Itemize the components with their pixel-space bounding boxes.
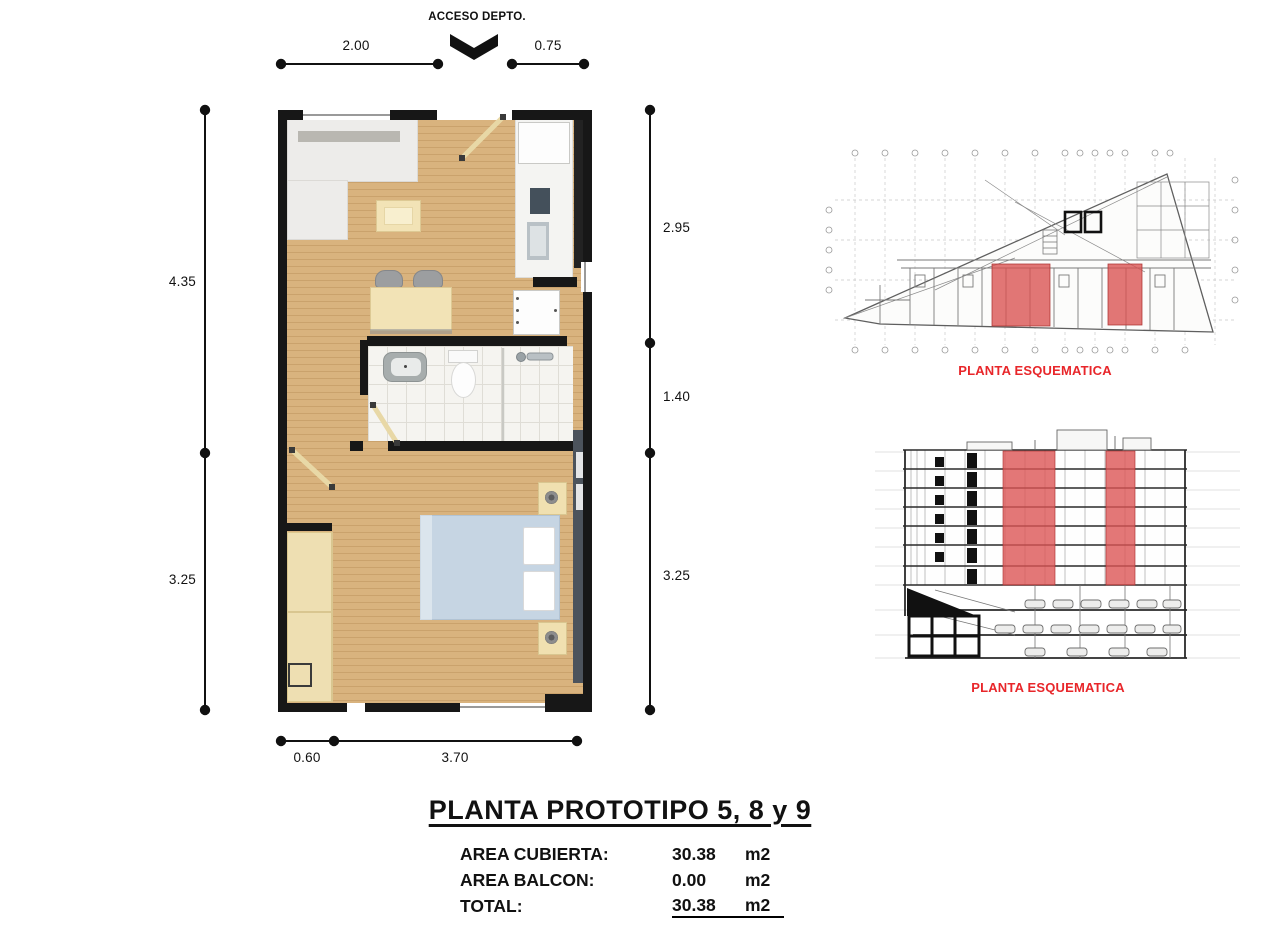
section-schematic	[875, 420, 1240, 675]
row-unit: m2	[745, 844, 783, 865]
dim-top-2: 0.75	[518, 38, 578, 53]
bathroom-door-leaf	[373, 405, 397, 443]
dim-left-1: 4.35	[148, 274, 196, 289]
area-table: AREA CUBIERTA: 30.38 m2 AREA BALCON: 0.0…	[460, 841, 784, 919]
parked-cars	[995, 600, 1181, 656]
row-value: 0.00	[672, 870, 745, 891]
row-label: TOTAL:	[460, 896, 672, 917]
entry-door-leaf	[462, 117, 503, 158]
dim-right-1: 2.95	[663, 220, 713, 235]
unit-highlight-section	[1003, 451, 1055, 585]
dim-right-2: 1.40	[663, 389, 713, 404]
row-value: 30.38	[672, 844, 745, 865]
row-label: AREA CUBIERTA:	[460, 844, 672, 865]
dim-bottom-2: 3.70	[431, 750, 479, 765]
table-row: AREA CUBIERTA: 30.38 m2	[460, 841, 784, 867]
key-plan-schematic	[815, 140, 1245, 362]
dim-left-2: 3.25	[148, 572, 196, 587]
unit-highlight	[1108, 264, 1142, 325]
table-row: AREA BALCON: 0.00 m2	[460, 867, 784, 893]
unit-highlight-section	[1106, 451, 1135, 585]
apartment-floor-plan	[278, 110, 592, 712]
dim-top-1: 2.00	[326, 38, 386, 53]
shower-fixture	[517, 353, 554, 362]
row-unit: m2	[745, 870, 783, 891]
row-label: AREA BALCON:	[460, 870, 672, 891]
unit-highlight	[992, 264, 1050, 326]
ground-frame	[909, 616, 979, 656]
row-value: 30.38	[672, 895, 745, 916]
doors-overlay	[278, 110, 592, 712]
section-caption: PLANTA ESQUEMATICA	[948, 680, 1148, 695]
entry-arrow-icon	[450, 34, 498, 60]
dim-bottom-1: 0.60	[283, 750, 331, 765]
bedroom-door-leaf	[292, 450, 332, 487]
sheet-title: PLANTA PROTOTIPO 5, 8 y 9	[400, 795, 840, 826]
row-unit: m2	[745, 895, 783, 916]
table-row: TOTAL: 30.38 m2	[460, 893, 784, 919]
dim-right-3: 3.25	[663, 568, 713, 583]
plan-sheet: ACCESO DEPTO. 2.00 0.75 4.35 3.25 2.95 1…	[0, 0, 1280, 927]
key-plan-caption: PLANTA ESQUEMATICA	[935, 363, 1135, 378]
